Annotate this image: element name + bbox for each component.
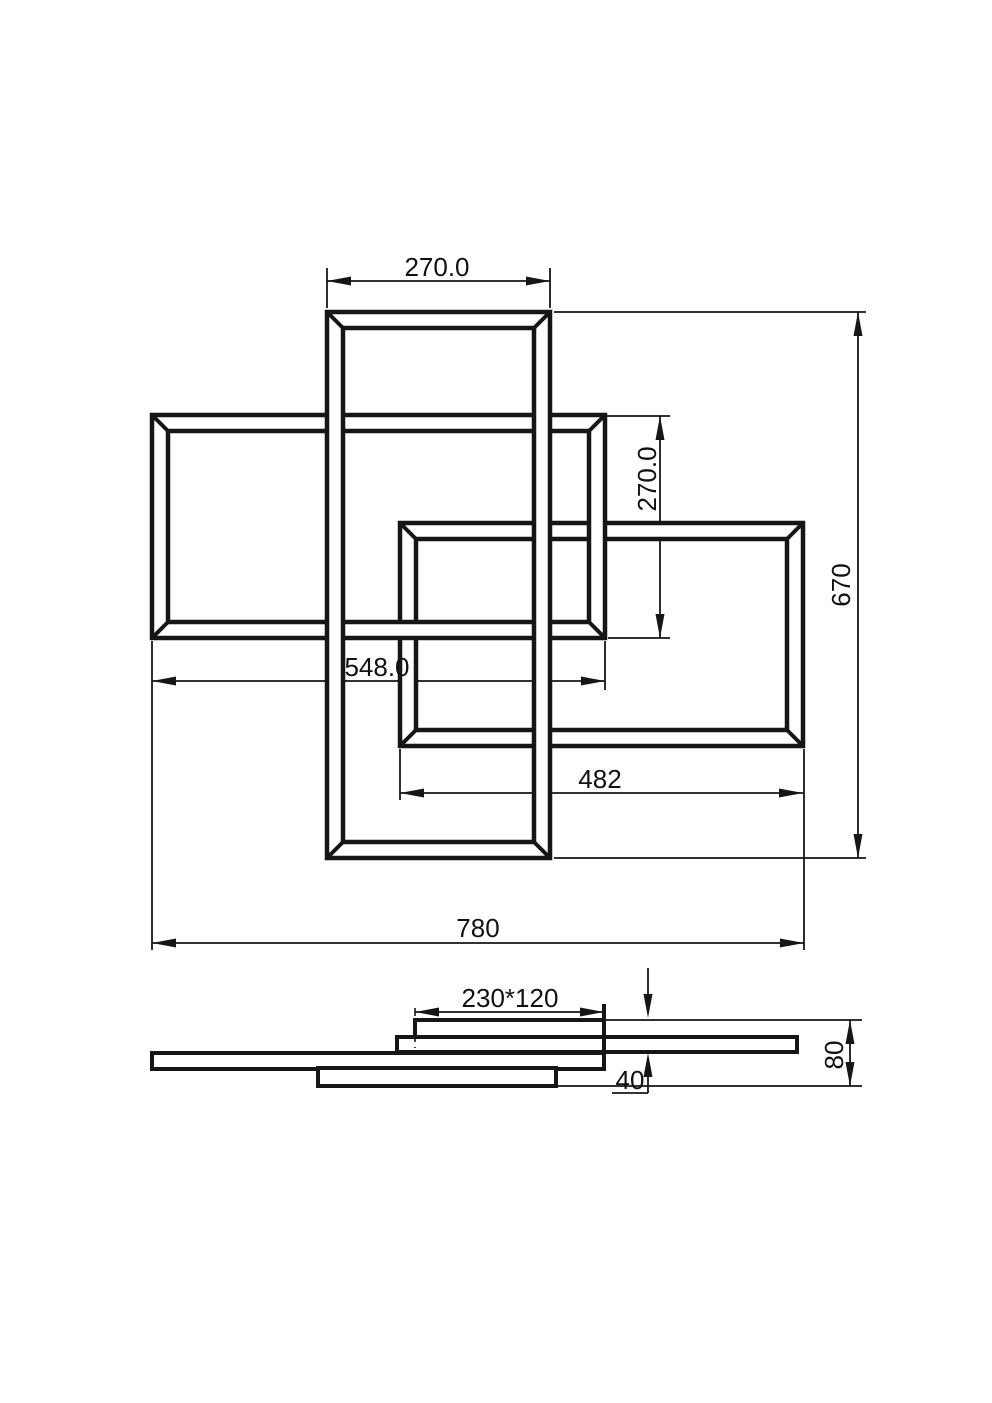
label-top-width: 270.0 [404,252,469,282]
arrowhead-left [152,677,176,686]
arrowhead-right [580,1008,604,1017]
arrowhead-right [780,939,804,948]
label-left-rect-width: 548.0 [344,652,409,682]
technical-drawing-canvas: 270.0 270.0 670 548.0 482 780 230*120 80… [0,0,992,1403]
top-frame-bar [318,1068,556,1086]
arrowhead-up [846,1020,855,1044]
side-view-profile [152,1004,797,1086]
arrowhead-down [644,994,653,1018]
label-overall-width: 780 [456,913,499,943]
arrowhead-down [656,614,665,638]
arrowhead-up [656,416,665,440]
right-frame-bar [397,1037,797,1052]
label-left-rect-height: 270.0 [632,446,662,511]
arrowhead-right [526,277,550,286]
technical-drawing-page: 270.0 270.0 670 548.0 482 780 230*120 80… [0,0,992,1403]
label-right-rect-width: 482 [578,764,621,794]
label-overall-height: 670 [826,563,856,606]
label-canopy-size: 230*120 [462,983,559,1013]
arrowhead-left [415,1008,439,1017]
arrowhead-right [779,789,803,798]
arrowhead-right [581,677,605,686]
arrowhead-left [152,939,176,948]
arrowhead-left [327,277,351,286]
arrowhead-left [400,789,424,798]
dimension-labels: 270.0 270.0 670 548.0 482 780 230*120 80… [344,252,856,1095]
label-side-height: 80 [819,1041,849,1070]
arrowhead-up [854,312,863,336]
top-view-frames [152,312,803,858]
label-side-offset: 40 [616,1065,645,1095]
frame-top-rect [327,312,550,858]
arrowhead-up [644,1053,653,1077]
arrowhead-down [854,834,863,858]
